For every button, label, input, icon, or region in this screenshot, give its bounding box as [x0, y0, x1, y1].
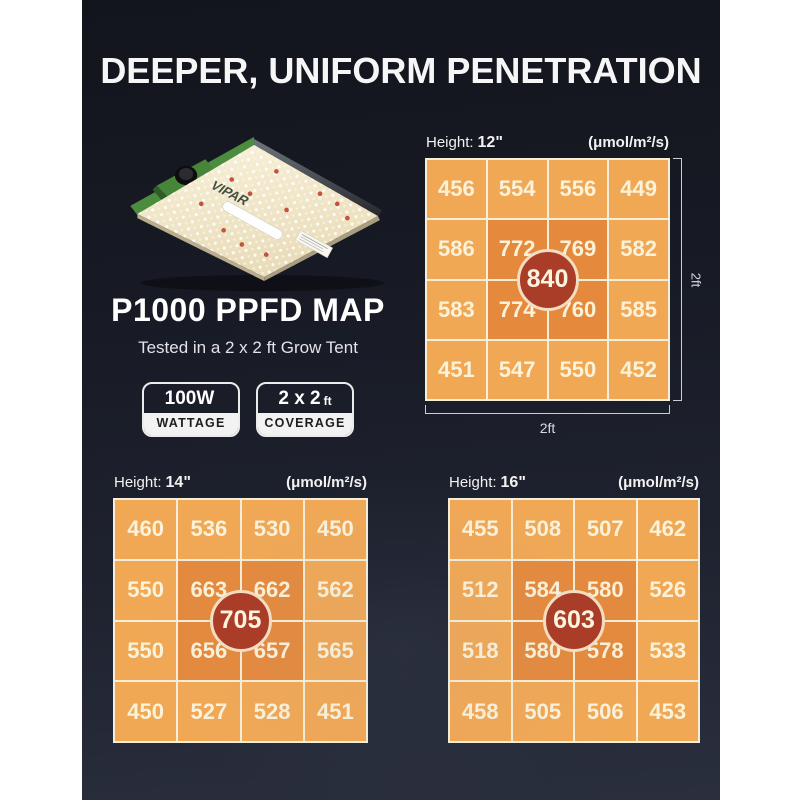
- width-dimension-label: 2ft: [540, 420, 556, 436]
- wattage-badge: 100W WATTAGE: [142, 382, 240, 437]
- grid-wrap-16in: 4555085074625125845805265185805785334585…: [448, 498, 700, 743]
- grid-cell: 456: [427, 160, 486, 218]
- grid-cell: 462: [638, 500, 699, 559]
- grid-cell: 527: [178, 682, 239, 741]
- grid-cell: 550: [115, 622, 176, 681]
- coverage-label: COVERAGE: [258, 413, 352, 435]
- height-prefix: Height:: [449, 474, 497, 491]
- height-value: 12": [478, 134, 503, 151]
- wattage-value: 100W: [165, 388, 215, 410]
- height-prefix: Height:: [426, 134, 474, 151]
- grid-cell: 547: [488, 341, 547, 399]
- grid-cell: 451: [427, 341, 486, 399]
- grid-cell: 554: [488, 160, 547, 218]
- height-label: Height:16": [449, 474, 526, 492]
- grid-cell: 507: [575, 500, 636, 559]
- height-value: 16": [501, 474, 526, 491]
- page-title: DEEPER, UNIFORM PENETRATION: [82, 50, 720, 92]
- ppfd-map-14in: Height:14" (μmol/m²/s) 46053653045055066…: [113, 474, 368, 743]
- infographic-panel: DEEPER, UNIFORM PENETRATION: [82, 0, 720, 800]
- units-label: (μmol/m²/s): [618, 474, 699, 491]
- grid-cell: 460: [115, 500, 176, 559]
- product-subtitle: Tested in a 2 x 2 ft Grow Tent: [97, 338, 399, 358]
- height-label: Height:12": [426, 134, 503, 152]
- grid-cell: 450: [115, 682, 176, 741]
- grid-cell: 586: [427, 220, 486, 278]
- grid-cell: 530: [242, 500, 303, 559]
- coverage-unit: ft: [324, 394, 332, 408]
- grid-cell: 528: [242, 682, 303, 741]
- led-dots: [137, 145, 377, 277]
- height-dimension-bracket: [673, 158, 682, 401]
- grid-cell: 512: [450, 561, 511, 620]
- product-name: P1000 PPFD MAP: [97, 292, 399, 329]
- coverage-badge: 2 x 2 ft COVERAGE: [256, 382, 354, 437]
- grid-cell: 518: [450, 622, 511, 681]
- grid-cell: 533: [638, 622, 699, 681]
- grow-light-image: VIPAR: [112, 130, 388, 294]
- grid-cell: 585: [609, 281, 668, 339]
- ppfd-map-16in: Height:16" (μmol/m²/s) 45550850746251258…: [448, 474, 700, 743]
- grid-cell: 506: [575, 682, 636, 741]
- grid-cell: 583: [427, 281, 486, 339]
- grid-cell: 536: [178, 500, 239, 559]
- page: DEEPER, UNIFORM PENETRATION: [0, 0, 800, 800]
- grid-cell: 451: [305, 682, 366, 741]
- grid-cell: 556: [549, 160, 608, 218]
- units-label: (μmol/m²/s): [286, 474, 367, 491]
- units-label: (μmol/m²/s): [588, 134, 669, 151]
- grid-cell: 458: [450, 682, 511, 741]
- grid-cell: 505: [513, 682, 574, 741]
- grid-cell: 449: [609, 160, 668, 218]
- grid-cell: 450: [305, 500, 366, 559]
- grid-cell: 582: [609, 220, 668, 278]
- spec-badges: 100W WATTAGE 2 x 2 ft COVERAGE: [97, 382, 399, 437]
- ppfd-map-12in: Height:12" (μmol/m²/s) 45655455644958677…: [425, 134, 670, 401]
- grid-header-12in: Height:12" (μmol/m²/s): [425, 134, 670, 152]
- grid-cell: 508: [513, 500, 574, 559]
- grid-cell: 455: [450, 500, 511, 559]
- grid-cell: 453: [638, 682, 699, 741]
- coverage-value: 2 x 2: [278, 388, 320, 410]
- width-dimension-bracket: [425, 405, 670, 414]
- grid-cell: 452: [609, 341, 668, 399]
- product-info: P1000 PPFD MAP Tested in a 2 x 2 ft Grow…: [97, 292, 399, 437]
- grid-cell: 526: [638, 561, 699, 620]
- height-label: Height:14": [114, 474, 191, 492]
- grid-header-14in: Height:14" (μmol/m²/s): [113, 474, 368, 492]
- grid-cell: 550: [549, 341, 608, 399]
- wattage-label: WATTAGE: [144, 413, 238, 435]
- center-ppfd-12in: 840: [517, 249, 579, 311]
- grid-header-16in: Height:16" (μmol/m²/s): [448, 474, 700, 492]
- dimmer-knob-top: [179, 168, 193, 180]
- center-ppfd-16in: 603: [543, 590, 605, 652]
- center-ppfd-14in: 705: [210, 590, 272, 652]
- grid-cell: 565: [305, 622, 366, 681]
- grid-wrap-14in: 4605365304505506636625625506566575654505…: [113, 498, 368, 743]
- height-value: 14": [166, 474, 191, 491]
- height-dimension-label: 2ft: [688, 272, 703, 286]
- grid-cell: 550: [115, 561, 176, 620]
- grid-wrap-12in: 4565545564495867727695825837747605854515…: [425, 158, 670, 401]
- height-prefix: Height:: [114, 474, 162, 491]
- grid-cell: 562: [305, 561, 366, 620]
